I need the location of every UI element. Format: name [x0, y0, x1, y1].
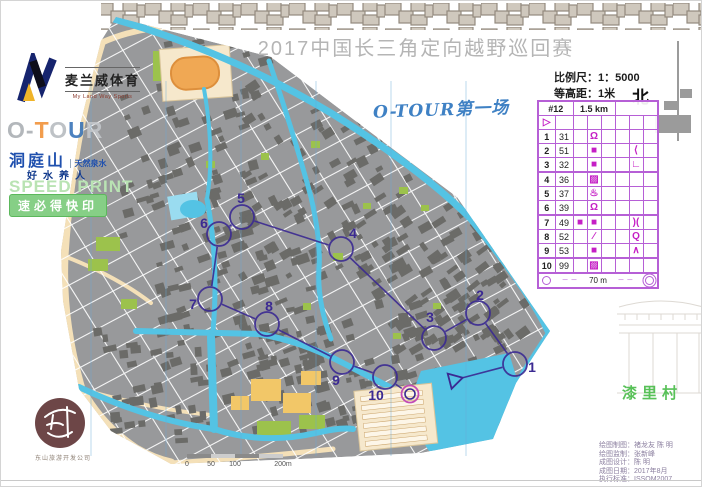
cd-cell: 53 — [555, 244, 573, 259]
cd-cell — [601, 158, 615, 173]
cd-cell — [615, 215, 629, 230]
scale-tick: 0 — [185, 461, 189, 468]
cd-cell: #12 — [538, 101, 573, 116]
cd-cell — [615, 130, 629, 144]
cd-cell — [643, 230, 658, 244]
cd-cell: 51 — [555, 144, 573, 158]
scale-bar: 0 50 100 200m — [179, 450, 309, 472]
cd-cell: 5 — [538, 187, 555, 201]
mylandway-logo-icon — [15, 53, 61, 105]
cd-cell — [573, 116, 587, 130]
cd-cell: 31 — [555, 130, 573, 144]
cd-cell — [643, 158, 658, 173]
cd-cell — [587, 116, 601, 130]
cd-cell — [615, 144, 629, 158]
cd-cell: 36 — [555, 172, 573, 187]
cd-cell: ⟨ — [629, 144, 643, 158]
cd-cell: Q — [629, 230, 643, 244]
cd-cell: ♨ — [587, 187, 601, 201]
cd-cell — [643, 201, 658, 216]
cd-cell — [573, 244, 587, 259]
cd-cell — [601, 244, 615, 259]
pavilion-watermark — [617, 301, 702, 393]
cd-cell: ■ — [587, 215, 601, 230]
cd-cell: 9 — [538, 244, 555, 259]
credit-line: 绘图制图：褚龙友 陈 明 — [599, 442, 673, 451]
cd-cell: 2 — [538, 144, 555, 158]
frame-line — [1, 480, 702, 481]
cd-cell — [615, 201, 629, 216]
cd-cell — [629, 187, 643, 201]
cd-cell — [601, 258, 615, 273]
village-name: 漆里村 — [605, 382, 699, 403]
cd-cell: 52 — [555, 230, 573, 244]
cd-cell: 37 — [555, 187, 573, 201]
scale-tick: 50 — [207, 461, 215, 468]
control-number-8: 8 — [265, 298, 273, 314]
scale-tick: 200m — [274, 461, 292, 468]
cd-cell — [573, 158, 587, 173]
cd-cell: ■ — [573, 215, 587, 230]
cd-cell — [615, 116, 629, 130]
control-number-6: 6 — [200, 215, 208, 231]
otour-letter: U — [68, 117, 86, 143]
cd-cell — [555, 116, 573, 130]
cd-cell: 1.5 km — [573, 101, 615, 116]
cd-cell: 1 — [538, 130, 555, 144]
cd-cell: 32 — [555, 158, 573, 173]
cd-cell: ■ — [587, 158, 601, 173]
cd-cell: 7 — [538, 215, 555, 230]
cd-cell — [601, 230, 615, 244]
cd-cell — [615, 158, 629, 173]
mylandway-sub: My Land Way Sports — [65, 94, 140, 100]
roof-tile-border — [101, 3, 701, 30]
cd-cell — [601, 215, 615, 230]
cd-cell — [615, 187, 629, 201]
cd-cell: ■ — [587, 244, 601, 259]
print-sponsor-cn: 速必得快印 — [9, 194, 107, 217]
finish-symbol — [542, 276, 551, 285]
otour-letter: O — [7, 117, 26, 143]
cd-cell: 10 — [538, 258, 555, 273]
cd-cell — [643, 258, 658, 273]
cd-cell — [629, 130, 643, 144]
control-number-9: 9 — [332, 372, 340, 388]
control-number-3: 3 — [426, 309, 434, 325]
cd-cell — [601, 144, 615, 158]
cd-cell — [601, 187, 615, 201]
otour-letter: T — [35, 117, 50, 143]
company-name: 东山旅游开发公司 — [15, 453, 111, 462]
cd-cell: Ω — [587, 130, 601, 144]
cd-cell — [629, 172, 643, 187]
cd-cell — [615, 244, 629, 259]
sponsor-mylandway: 麦兰威体育 My Land Way Sports — [15, 53, 140, 105]
otour-letter: - — [26, 117, 35, 143]
cd-cell — [573, 187, 587, 201]
cd-cell: ▨ — [587, 258, 601, 273]
control-descriptions-table: #121.5 km▷131Ω251■⟨332■∟436▨537♨639Ω749■… — [537, 100, 659, 289]
map-credits: 绘图制图：褚龙友 陈 明绘图监制：张新峰成图设计：陈 明成图日期：2017年8月… — [599, 442, 673, 485]
cd-cell: )( — [629, 215, 643, 230]
control-number-5: 5 — [237, 190, 245, 206]
finish-symbol — [645, 276, 654, 285]
cd-cell — [643, 187, 658, 201]
cd-cell — [615, 172, 629, 187]
cd-cell — [573, 230, 587, 244]
credit-line: 成图设计：陈 明 — [599, 459, 673, 468]
cd-cell: 3 — [538, 158, 555, 173]
cd-cell — [601, 201, 615, 216]
cd-cell — [601, 116, 615, 130]
cd-cell — [643, 144, 658, 158]
cd-cell — [643, 244, 658, 259]
cd-cell — [643, 215, 658, 230]
cd-cell: 6 — [538, 201, 555, 216]
event-title: 2017中国长三角定向越野巡回赛 — [241, 32, 591, 61]
event-map-poster: 12345678910 北 2017中国长三角定向越野巡回赛 O-TOUR第一场… — [0, 0, 702, 487]
cd-cell: 99 — [555, 258, 573, 273]
cd-cell: 39 — [555, 201, 573, 216]
dongshan-seal-icon — [31, 395, 89, 453]
cd-cell: 4 — [538, 172, 555, 187]
cd-cell — [573, 144, 587, 158]
scale-tick: 100 — [229, 461, 241, 468]
control-descriptions: #121.5 km▷131Ω251■⟨332■∟436▨537♨639Ω749■… — [537, 100, 659, 289]
cd-cell — [573, 172, 587, 187]
otour-logo: O-TOUR — [7, 117, 103, 144]
cd-cell — [629, 258, 643, 273]
control-number-2: 2 — [476, 287, 484, 303]
credit-line: 成图日期：2017年8月 — [599, 468, 673, 477]
cd-cell: ▷ — [538, 116, 555, 130]
scale-label: 比例尺：1：5000 — [554, 70, 640, 86]
cd-cell: 8 — [538, 230, 555, 244]
cd-cell: ▨ — [587, 172, 601, 187]
cd-cell — [615, 230, 629, 244]
cd-cell: ─ ─70 m─ ─ — [538, 273, 658, 288]
cd-cell — [629, 116, 643, 130]
credit-line: 绘图监制：张新峰 — [599, 451, 673, 460]
control-number-7: 7 — [189, 296, 197, 312]
otour-letter: O — [49, 117, 68, 143]
cd-cell: ∕ — [587, 230, 601, 244]
cd-cell: 49 — [555, 215, 573, 230]
cd-cell — [643, 172, 658, 187]
cd-cell — [573, 258, 587, 273]
cd-cell — [615, 258, 629, 273]
stadium — [159, 45, 232, 102]
piers — [354, 383, 438, 451]
cd-cell — [573, 201, 587, 216]
finish-distance: 70 m — [589, 276, 607, 285]
map-info: 比例尺：1：5000 等高距：1米 — [554, 70, 640, 102]
cd-cell — [643, 116, 658, 130]
control-number-10: 10 — [368, 387, 384, 403]
cd-cell — [601, 172, 615, 187]
cd-cell — [615, 101, 658, 116]
control-number-1: 1 — [528, 359, 536, 375]
mylandway-name: 麦兰威体育 — [65, 67, 140, 92]
cd-cell — [573, 130, 587, 144]
cd-cell — [629, 201, 643, 216]
cd-cell — [601, 130, 615, 144]
cd-cell: ∧ — [629, 244, 643, 259]
cd-cell — [643, 130, 658, 144]
control-number-4: 4 — [349, 225, 357, 241]
otour-letter: R — [86, 117, 104, 143]
cd-cell: ∟ — [629, 158, 643, 173]
cd-cell: ■ — [587, 144, 601, 158]
cd-cell: Ω — [587, 201, 601, 216]
